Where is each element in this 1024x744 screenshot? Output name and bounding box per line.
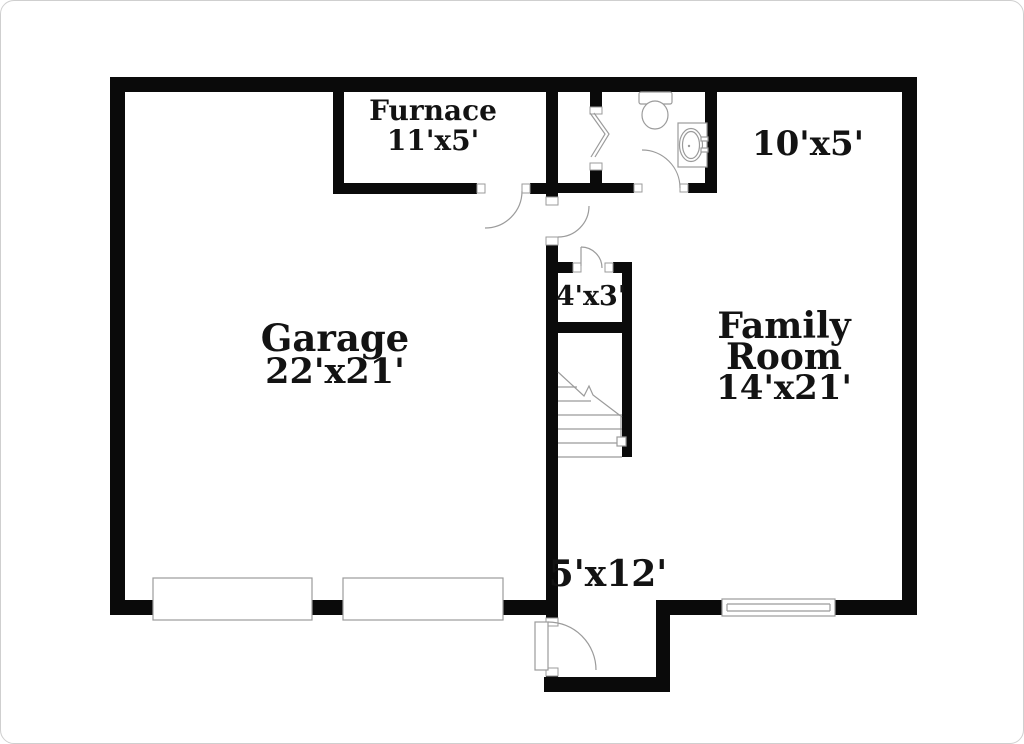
garage-door-right xyxy=(343,578,503,620)
entry-door xyxy=(535,622,596,670)
closet-label: 4'x3' xyxy=(556,282,626,311)
toilet xyxy=(639,92,672,129)
window xyxy=(722,599,835,616)
floorplan-drawing xyxy=(0,0,1024,744)
sink-vanity xyxy=(678,123,708,167)
garage-door-left xyxy=(153,578,312,620)
closet-dims: 4'x3' xyxy=(556,282,626,311)
furnace-hall-door xyxy=(485,191,522,228)
furnace-label: Furnace 11'x5' xyxy=(369,96,497,156)
floorplan-page: Furnace 11'x5' 10'x5' Garage 22'x21' Fam… xyxy=(0,0,1024,744)
furnace-room-dims: 11'x5' xyxy=(369,126,497,156)
bathroom-dims: 10'x5' xyxy=(752,126,864,162)
bathroom-door xyxy=(642,150,680,188)
hall-door xyxy=(558,206,589,237)
garage-room-name: Garage xyxy=(261,321,409,355)
bifold-door xyxy=(590,113,609,157)
garage-label: Garage 22'x21' xyxy=(261,321,409,389)
bathroom-label: 10'x5' xyxy=(752,126,864,162)
furnace-room-name: Furnace xyxy=(369,96,497,126)
closet-door xyxy=(581,247,602,268)
entry-hall-dims: 5'x12' xyxy=(549,555,668,593)
entry-hall-label: 5'x12' xyxy=(549,555,668,593)
family-room-label: Family Room 14'x21' xyxy=(716,311,852,404)
family-room-dims: 14'x21' xyxy=(716,373,852,404)
garage-room-dims: 22'x21' xyxy=(261,355,409,389)
stairs xyxy=(558,372,626,457)
